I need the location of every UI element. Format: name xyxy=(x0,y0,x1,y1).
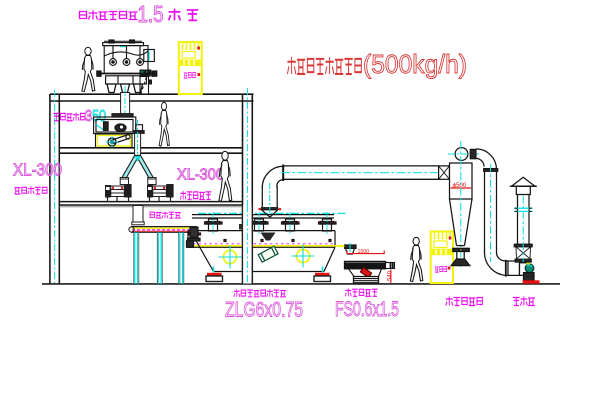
svg-text:1500: 1500 xyxy=(358,249,370,255)
svg-text:ϕ500: ϕ500 xyxy=(453,182,467,189)
svg-text:540: 540 xyxy=(388,270,394,281)
svg-text:FS0.6x1.5: FS0.6x1.5 xyxy=(335,298,399,321)
svg-text:XL-300: XL-300 xyxy=(13,160,62,180)
svg-text:XL-300: XL-300 xyxy=(177,167,224,184)
svg-text:(500kg/h): (500kg/h) xyxy=(363,49,467,79)
svg-text:ZLG6x0.75: ZLG6x0.75 xyxy=(225,298,303,322)
svg-text:1.5: 1.5 xyxy=(138,1,164,27)
